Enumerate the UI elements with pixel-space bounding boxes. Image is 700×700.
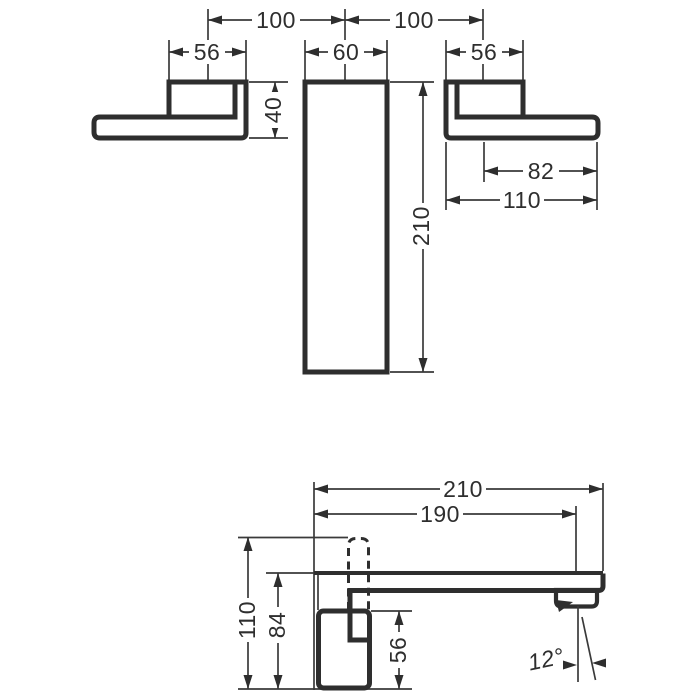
handle-side [319,611,370,688]
faucet-dimension-drawing: 100 100 56 60 56 40 210 82 110 [0,0,700,700]
right-handle-front [446,82,598,138]
dim-label-spacing-left: 100 [256,7,296,33]
dim-label-spout-reach-aerator: 190 [420,501,460,527]
dim-label-height-total: 110 [234,601,260,639]
dim-label-plate-width: 60 [333,39,360,65]
dim-label-left-handle-width: 56 [194,39,221,65]
dim-label-side-handle-height: 56 [385,637,411,664]
dim-label-handle-length: 110 [503,187,541,213]
dim-label-spray-angle: 12° [526,643,567,676]
dim-label-right-handle-width: 56 [471,39,498,65]
dim-label-lever-reach: 82 [528,158,555,184]
technical-drawing-page: 100 100 56 60 56 40 210 82 110 [0,0,700,700]
right-handle-escutcheon [452,82,523,119]
dim-label-spacing-right: 100 [394,7,434,33]
side-view: 12° 210 190 110 84 56 [234,476,606,690]
dim-label-spout-height: 84 [264,612,290,639]
dim-label-handle-height: 40 [260,97,286,124]
spout-plate-front [305,82,387,372]
dim-label-spout-reach-total: 210 [443,476,483,502]
spray-angle-annotation: 12° [526,606,606,682]
dim-label-plate-height: 210 [408,206,434,246]
left-handle-front [94,82,246,138]
front-view: 100 100 56 60 56 40 210 82 110 [94,7,598,372]
spout-side [314,573,603,591]
left-handle-escutcheon [169,82,240,119]
